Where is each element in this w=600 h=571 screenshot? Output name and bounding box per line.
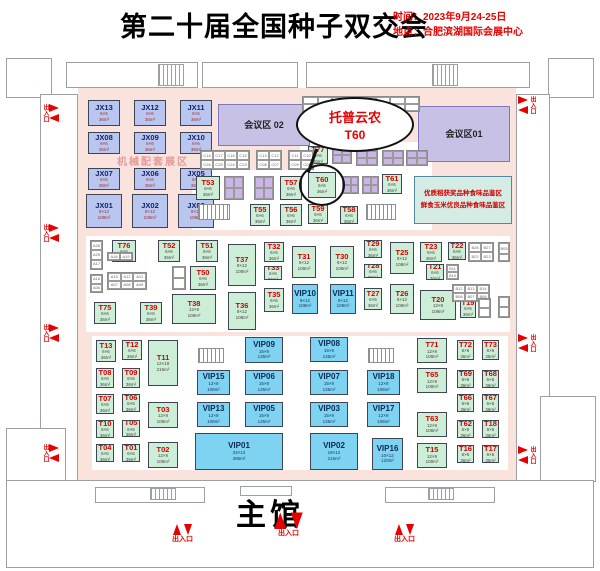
mini-booth bbox=[173, 267, 185, 278]
booth-id: T61 bbox=[386, 175, 399, 183]
booth-area: 36m² bbox=[145, 118, 155, 123]
booth-id: VIP01 bbox=[228, 442, 250, 450]
mini-booth bbox=[333, 155, 342, 163]
booth-id: JX12 bbox=[141, 104, 159, 112]
booth-area: 36m² bbox=[146, 318, 156, 323]
booth-dimensions: 12×9 bbox=[378, 382, 388, 387]
booth-VIP06: VIP0615×9135m² bbox=[245, 370, 283, 395]
booth-id: JX08 bbox=[95, 134, 113, 142]
booth-area: 36m² bbox=[430, 277, 440, 280]
booth-area: 36m² bbox=[145, 148, 155, 153]
booth-area: 36m² bbox=[485, 408, 495, 412]
mini-booth: C23 bbox=[237, 160, 249, 169]
mini-booth: A11 bbox=[133, 273, 146, 281]
booth-id: T12 bbox=[126, 341, 139, 349]
booth-JX09: JX096×636m² bbox=[134, 132, 166, 154]
building-structure bbox=[548, 58, 594, 98]
booth-area: 36m² bbox=[485, 459, 495, 463]
mini-booth-group bbox=[406, 150, 428, 166]
booth-area: 36m² bbox=[198, 283, 208, 288]
mini-booth: C07 bbox=[269, 160, 281, 169]
mini-booth: B14 bbox=[477, 285, 489, 293]
booth-id: VIP09 bbox=[253, 341, 275, 349]
booth-T22: T226×636m² bbox=[448, 242, 466, 260]
booth-id: T62 bbox=[459, 420, 472, 427]
building-structure bbox=[306, 62, 530, 88]
mini-booth bbox=[383, 158, 393, 165]
booth-area: 108m² bbox=[396, 263, 409, 268]
booth-area: 108m² bbox=[426, 355, 439, 360]
booth-id: T65 bbox=[426, 371, 439, 379]
callout-bubble: 托普云农 T60 bbox=[296, 97, 414, 152]
booth-id: JX13 bbox=[95, 104, 113, 112]
arrow-icon bbox=[49, 234, 59, 242]
mini-booth: A08 bbox=[121, 281, 134, 289]
entrance-bottom: 出入口 bbox=[394, 524, 415, 543]
booth-T10: T106×636m² bbox=[96, 420, 114, 438]
mini-booth bbox=[351, 177, 359, 185]
booth-dimensions: 15×9 bbox=[259, 382, 269, 387]
booth-id: T01 bbox=[125, 444, 138, 451]
entrance-arrows-icon bbox=[49, 224, 59, 242]
mini-booth-group: B28B27B22B23 bbox=[468, 242, 494, 262]
callout-booth-number: T60 bbox=[345, 128, 366, 142]
booth-area: 108m² bbox=[157, 460, 170, 465]
booth-id: T53 bbox=[202, 179, 215, 187]
booth-area: 36m² bbox=[460, 434, 470, 438]
booth-T52: T526×636m² bbox=[158, 240, 180, 262]
booth-T62: T626×636m² bbox=[457, 420, 474, 438]
booth-area: 36m² bbox=[99, 118, 109, 123]
booth-area: 36m² bbox=[255, 220, 265, 225]
booth-JX08: JX086×636m² bbox=[88, 132, 120, 154]
arrow-icon bbox=[49, 104, 59, 112]
mini-booth: A26 bbox=[91, 241, 102, 250]
booth-T36: T369×12108m² bbox=[228, 292, 256, 330]
entrance-label: 出入口 bbox=[42, 444, 48, 462]
booth-id: VIP17 bbox=[373, 405, 395, 413]
booth-area: 36m² bbox=[126, 433, 136, 437]
stairs-icon bbox=[366, 204, 396, 220]
booth-area: 36m² bbox=[126, 458, 136, 462]
booth-area: 36m² bbox=[460, 459, 470, 463]
booth-JX11: JX116×636m² bbox=[180, 100, 212, 126]
booth-id: T58 bbox=[343, 206, 356, 213]
mini-booth bbox=[363, 185, 371, 193]
booth-area: 135m² bbox=[323, 355, 336, 360]
mini-booth bbox=[367, 151, 377, 158]
booth-T38: T3812×9108m² bbox=[172, 294, 216, 324]
booth-area: 36m² bbox=[164, 256, 174, 261]
booth-T06: T066×636m² bbox=[122, 394, 140, 412]
booth-id: T71 bbox=[426, 341, 439, 349]
entrance-arrows-icon bbox=[518, 446, 528, 464]
booth-id: T10 bbox=[99, 420, 112, 427]
booth-area: 36m² bbox=[460, 408, 470, 412]
entrance-arrows-icon bbox=[395, 524, 414, 535]
booth-taste: 优质稻获奖品种食味品鉴区鲜食玉米优良品种食味品鉴区 bbox=[414, 176, 512, 224]
booth-id: T31 bbox=[298, 253, 311, 261]
entrance-left: 出入口 bbox=[42, 104, 59, 122]
mini-booth bbox=[499, 307, 509, 317]
booth-area: 36m² bbox=[460, 355, 470, 360]
booth-id: T06 bbox=[125, 394, 138, 401]
entrance-label: 出入口 bbox=[42, 224, 48, 242]
booth-area: 36m² bbox=[100, 383, 110, 388]
booth-area: 36m² bbox=[203, 193, 213, 198]
booth-area: 135m² bbox=[258, 388, 271, 393]
mini-booth: A12 bbox=[121, 273, 134, 281]
booth-T20: T2012×9108m² bbox=[420, 290, 456, 320]
mini-booth: B10 bbox=[447, 272, 458, 279]
mini-booth-group: A13A12A11A07A08A09 bbox=[107, 272, 147, 290]
booth-id: T51 bbox=[201, 242, 214, 250]
booth-area: 36m² bbox=[286, 220, 296, 225]
booth-VIP10: VIP109×12108m² bbox=[292, 284, 318, 314]
booth-area: 36m² bbox=[127, 355, 137, 360]
booth-T58: T586×636m² bbox=[340, 206, 358, 224]
booth-id: T67 bbox=[484, 394, 497, 401]
booth-area: 396m² bbox=[233, 457, 246, 462]
booth-T12: T126×636m² bbox=[122, 340, 142, 360]
booth-area: 36m² bbox=[126, 408, 136, 412]
booth-T11: T1112×18216m² bbox=[148, 340, 178, 386]
mini-booth-group: A26A25A17 bbox=[90, 240, 103, 270]
mini-booth: C11 bbox=[289, 151, 301, 160]
mini-booth-group bbox=[356, 150, 378, 166]
mini-booth bbox=[393, 151, 403, 158]
booth-id: T66 bbox=[459, 394, 472, 401]
mini-booth: C16 bbox=[225, 151, 237, 160]
entrance-arrows-icon bbox=[274, 513, 303, 530]
stairs-icon bbox=[368, 348, 394, 363]
arrow-icon bbox=[49, 334, 59, 342]
booth-area: 216m² bbox=[157, 368, 170, 373]
arrow-icon bbox=[184, 524, 192, 535]
mini-booth-group bbox=[382, 150, 404, 166]
mini-booth: B11 bbox=[447, 265, 458, 272]
entrance-arrows-icon bbox=[49, 444, 59, 462]
entrance-label: 出入口 bbox=[529, 96, 535, 114]
booth-area: 108m² bbox=[336, 267, 349, 272]
mini-booth: C12 bbox=[269, 151, 281, 160]
mini-booth-group: A18A19 bbox=[107, 252, 133, 261]
booth-id: T15 bbox=[426, 446, 439, 454]
booth-T56: T566×636m² bbox=[280, 204, 302, 226]
booth-id: VIP15 bbox=[203, 373, 225, 381]
booth-id: T56 bbox=[285, 206, 298, 214]
booth-id: JX09 bbox=[141, 134, 159, 142]
booth-JX07: JX076×636m² bbox=[88, 168, 120, 190]
mini-booth: B12 bbox=[453, 285, 465, 293]
booth-JX02: JX029×12108m² bbox=[132, 194, 168, 228]
building-structure bbox=[158, 64, 184, 86]
entrance-label: 出入口 bbox=[394, 536, 415, 543]
mini-booth: C08 bbox=[257, 160, 269, 169]
entrance-label: 出入口 bbox=[278, 530, 299, 537]
tasting-zone-line1: 优质稻获奖品种食味品鉴区 bbox=[424, 191, 502, 198]
entrance-label: 出入口 bbox=[42, 324, 48, 342]
booth-T30: T309×12108m² bbox=[330, 246, 354, 278]
booth-id: JX11 bbox=[187, 104, 204, 112]
mini-booth bbox=[357, 158, 367, 165]
mini-booth bbox=[405, 97, 420, 104]
arrow-icon bbox=[406, 524, 414, 535]
booth-area: 108m² bbox=[299, 304, 312, 309]
booth-dimensions: 12×9 bbox=[208, 382, 218, 387]
booth-area: 36m² bbox=[286, 193, 296, 198]
mini-booth: B22 bbox=[469, 252, 481, 261]
booth-dimensions: 18×12 bbox=[328, 451, 341, 456]
booth-area: 36m² bbox=[100, 409, 110, 414]
booth-id: T05 bbox=[125, 420, 138, 427]
booth-area: 108m² bbox=[337, 304, 350, 309]
booth-area: 36m² bbox=[99, 184, 109, 189]
mini-booth bbox=[499, 297, 509, 307]
booth-area: 36m² bbox=[100, 434, 110, 438]
booth-id: T22 bbox=[451, 242, 464, 249]
booth-id: VIP16 bbox=[377, 445, 399, 453]
booth-area: 108m² bbox=[432, 310, 445, 315]
booth-area: 36m² bbox=[191, 118, 201, 123]
booth-T28: T286×636m² bbox=[364, 264, 382, 278]
mini-booth: C17 bbox=[213, 151, 225, 160]
building-structure bbox=[40, 94, 78, 484]
booth-T50: T506×636m² bbox=[190, 266, 216, 290]
mini-booth: B23 bbox=[481, 252, 493, 261]
booth-area: 36m² bbox=[368, 276, 378, 278]
booth-VIP11: VIP119×12108m² bbox=[330, 284, 356, 314]
booth-VIP16: VIP1610×12120m² bbox=[372, 438, 403, 470]
booth-id: T68 bbox=[484, 370, 497, 377]
mini-booth: C15 bbox=[237, 151, 249, 160]
mini-booth-group bbox=[362, 176, 379, 194]
entrance-left: 出入口 bbox=[42, 444, 59, 462]
mini-booth-group: B05 bbox=[498, 242, 510, 262]
booth-area: 36m² bbox=[344, 220, 354, 224]
booth-area: 36m² bbox=[268, 278, 278, 280]
booth-id: T03 bbox=[157, 406, 170, 414]
booth-area: 108m² bbox=[377, 420, 390, 425]
booth-area: 36m² bbox=[426, 257, 436, 262]
mini-booth: A06 bbox=[91, 284, 102, 293]
booth-area: 36m² bbox=[100, 318, 110, 323]
mini-booth bbox=[371, 185, 379, 193]
booth-T15: T1512×9108m² bbox=[417, 443, 447, 468]
building-structure bbox=[202, 62, 298, 88]
booth-T51: T516×636m² bbox=[196, 240, 218, 262]
booth-T53: T536×636m² bbox=[196, 176, 220, 200]
entrance-left: 出入口 bbox=[42, 324, 59, 342]
booth-id: VIP11 bbox=[332, 290, 353, 298]
mini-booth bbox=[417, 151, 427, 158]
t60-highlight-ring bbox=[299, 164, 345, 206]
booth-id: T23 bbox=[425, 243, 438, 251]
mini-booth: B08 bbox=[453, 293, 465, 301]
main-hall-label: 主馆 bbox=[215, 490, 325, 534]
mini-booth bbox=[393, 158, 403, 165]
booth-T61: T616×636m² bbox=[382, 174, 402, 194]
booth-area: 108m² bbox=[157, 420, 170, 425]
entrance-bottom: 出入口 bbox=[278, 518, 299, 537]
conference-label: 会议区01 bbox=[445, 130, 482, 139]
booth-area: 108m² bbox=[144, 216, 157, 221]
booth-T33: T336×636m² bbox=[264, 266, 282, 280]
mini-booth-group bbox=[478, 298, 491, 318]
booth-T17: T176×636m² bbox=[482, 445, 499, 463]
booth-T23: T236×636m² bbox=[420, 242, 442, 262]
booth-T32: T326×636m² bbox=[264, 242, 284, 262]
mini-booth bbox=[264, 177, 273, 188]
mini-booth bbox=[173, 278, 185, 289]
booth-id: T75 bbox=[99, 304, 112, 312]
mini-booth bbox=[342, 155, 351, 163]
booth-id: T39 bbox=[145, 304, 158, 312]
mini-booth: B05 bbox=[499, 243, 509, 254]
booth-id: VIP05 bbox=[253, 405, 275, 413]
mini-booth bbox=[383, 151, 393, 158]
booth-area: 135m² bbox=[323, 388, 336, 393]
booth-id: JX02 bbox=[141, 202, 159, 210]
booth-VIP08: VIP0815×9135m² bbox=[310, 337, 348, 362]
booth-VIP17: VIP1712×9108m² bbox=[367, 402, 400, 427]
booth-id: T55 bbox=[254, 206, 267, 214]
tasting-zone-line2: 鲜食玉米优良品种食味品鉴区 bbox=[421, 203, 506, 210]
building-structure bbox=[428, 488, 454, 500]
booth-id: T02 bbox=[157, 446, 170, 454]
booth-area: 216m² bbox=[328, 457, 341, 462]
entrance-label: 出入口 bbox=[529, 446, 535, 464]
mini-booth-group bbox=[224, 176, 244, 200]
booth-T66: T666×636m² bbox=[457, 394, 474, 412]
mini-booth bbox=[225, 188, 234, 199]
arrow-icon bbox=[518, 96, 528, 104]
booth-area: 120m² bbox=[381, 459, 394, 464]
booth-id: T73 bbox=[484, 341, 497, 349]
mini-booth bbox=[264, 188, 273, 199]
booth-area: 108m² bbox=[98, 216, 111, 221]
booth-area: 135m² bbox=[258, 355, 271, 360]
mini-booth bbox=[255, 188, 264, 199]
mini-booth-group bbox=[254, 176, 274, 200]
booth-conf01: 会议区01 bbox=[418, 106, 510, 162]
building-structure bbox=[540, 396, 596, 482]
entrance-arrows-icon bbox=[49, 104, 59, 122]
mini-booth: A18 bbox=[108, 253, 120, 260]
booth-JX12: JX126×636m² bbox=[134, 100, 166, 126]
booth-area: 36m² bbox=[452, 256, 462, 260]
mini-booth bbox=[351, 185, 359, 193]
booth-id: VIP03 bbox=[318, 405, 340, 413]
booth-id: T13 bbox=[100, 342, 113, 350]
mini-booth: A07 bbox=[108, 281, 121, 289]
booth-area: 36m² bbox=[99, 148, 109, 153]
mini-booth bbox=[255, 177, 264, 188]
mini-booth bbox=[499, 254, 509, 261]
mini-booth bbox=[234, 177, 243, 188]
entrance-bottom: 出入口 bbox=[172, 524, 193, 543]
booth-T71: T7112×9108m² bbox=[417, 338, 447, 363]
booth-T18: T186×636m² bbox=[482, 420, 499, 438]
mini-booth bbox=[225, 177, 234, 188]
booth-id: T27 bbox=[367, 290, 380, 298]
booth-area: 135m² bbox=[258, 420, 271, 425]
booth-JX13: JX136×636m² bbox=[88, 100, 120, 126]
booth-area: 36m² bbox=[460, 384, 470, 388]
mini-booth: A19 bbox=[120, 253, 132, 260]
booth-dimensions: 15×9 bbox=[324, 414, 334, 419]
booth-id: T32 bbox=[268, 243, 281, 251]
booth-id: T50 bbox=[197, 269, 210, 277]
booth-T72: T726×636m² bbox=[457, 340, 474, 360]
mini-booth bbox=[479, 299, 490, 308]
arrow-icon bbox=[395, 524, 403, 535]
booth-id: T25 bbox=[396, 249, 409, 257]
entrance-right: 出入口 bbox=[518, 96, 535, 114]
mini-booth bbox=[357, 151, 367, 158]
booth-area: 108m² bbox=[207, 420, 220, 425]
booth-T09: T096×636m² bbox=[122, 368, 140, 388]
arrow-icon bbox=[49, 224, 59, 232]
booth-T67: T676×636m² bbox=[482, 394, 499, 412]
booth-id: T08 bbox=[99, 369, 112, 377]
booth-id: T57 bbox=[285, 179, 298, 187]
booth-id: VIP18 bbox=[373, 373, 395, 381]
booth-T13: T136×636m² bbox=[96, 340, 116, 362]
booth-T26: T269×12108m² bbox=[390, 284, 414, 314]
booth-area: 108m² bbox=[396, 304, 409, 309]
mini-booth-group: C13C12C08C07 bbox=[256, 150, 282, 170]
booth-id: T04 bbox=[99, 444, 112, 451]
booth-VIP03: VIP0315×9135m² bbox=[310, 402, 348, 427]
booth-JX01: JX019×12108m² bbox=[86, 194, 122, 228]
booth-VIP02: VIP0218×12216m² bbox=[310, 433, 358, 470]
booth-T68: T686×636m² bbox=[482, 370, 499, 388]
booth-area: 36m² bbox=[101, 356, 111, 361]
booth-dimensions: 15×9 bbox=[259, 414, 269, 419]
booth-area: 36m² bbox=[368, 304, 378, 309]
stairs-icon bbox=[198, 348, 224, 363]
booth-dimensions: 12×9 bbox=[208, 414, 218, 419]
booth-area: 36m² bbox=[100, 458, 110, 462]
booth-id: T37 bbox=[236, 256, 249, 264]
booth-area: 36m² bbox=[126, 383, 136, 388]
booth-JX06: JX066×636m² bbox=[134, 168, 166, 190]
arrow-icon bbox=[291, 513, 303, 530]
booth-id: T18 bbox=[484, 420, 497, 427]
mini-booth bbox=[371, 177, 379, 185]
booth-T69: T696×636m² bbox=[457, 370, 474, 388]
entrance-right: 出入口 bbox=[518, 334, 535, 352]
mini-booth: A09 bbox=[133, 281, 146, 289]
machinery-zone-label: 机械配套展区 bbox=[98, 153, 208, 168]
mini-booth bbox=[407, 151, 417, 158]
booth-area: 108m² bbox=[426, 385, 439, 390]
building-structure bbox=[150, 488, 176, 500]
event-info: 时间：2023年9月24-25日 地点：合肥滨湖国际会展中心 bbox=[393, 10, 523, 40]
booth-id: T29 bbox=[367, 240, 380, 247]
booth-T29: T296×636m² bbox=[364, 240, 382, 258]
booth-id: T26 bbox=[396, 290, 409, 298]
booth-area: 36m² bbox=[485, 384, 495, 388]
booth-id: T09 bbox=[125, 369, 138, 377]
exhibition-floorplan: 第二十届全国种子双交会 时间：2023年9月24-25日 地点：合肥滨湖国际会展… bbox=[0, 0, 600, 571]
booth-T05: T056×636m² bbox=[122, 420, 140, 437]
booth-dimensions: 12×9 bbox=[378, 414, 388, 419]
booth-area: 108m² bbox=[236, 270, 249, 275]
booth-id: T52 bbox=[163, 242, 176, 250]
building-structure bbox=[432, 64, 458, 86]
